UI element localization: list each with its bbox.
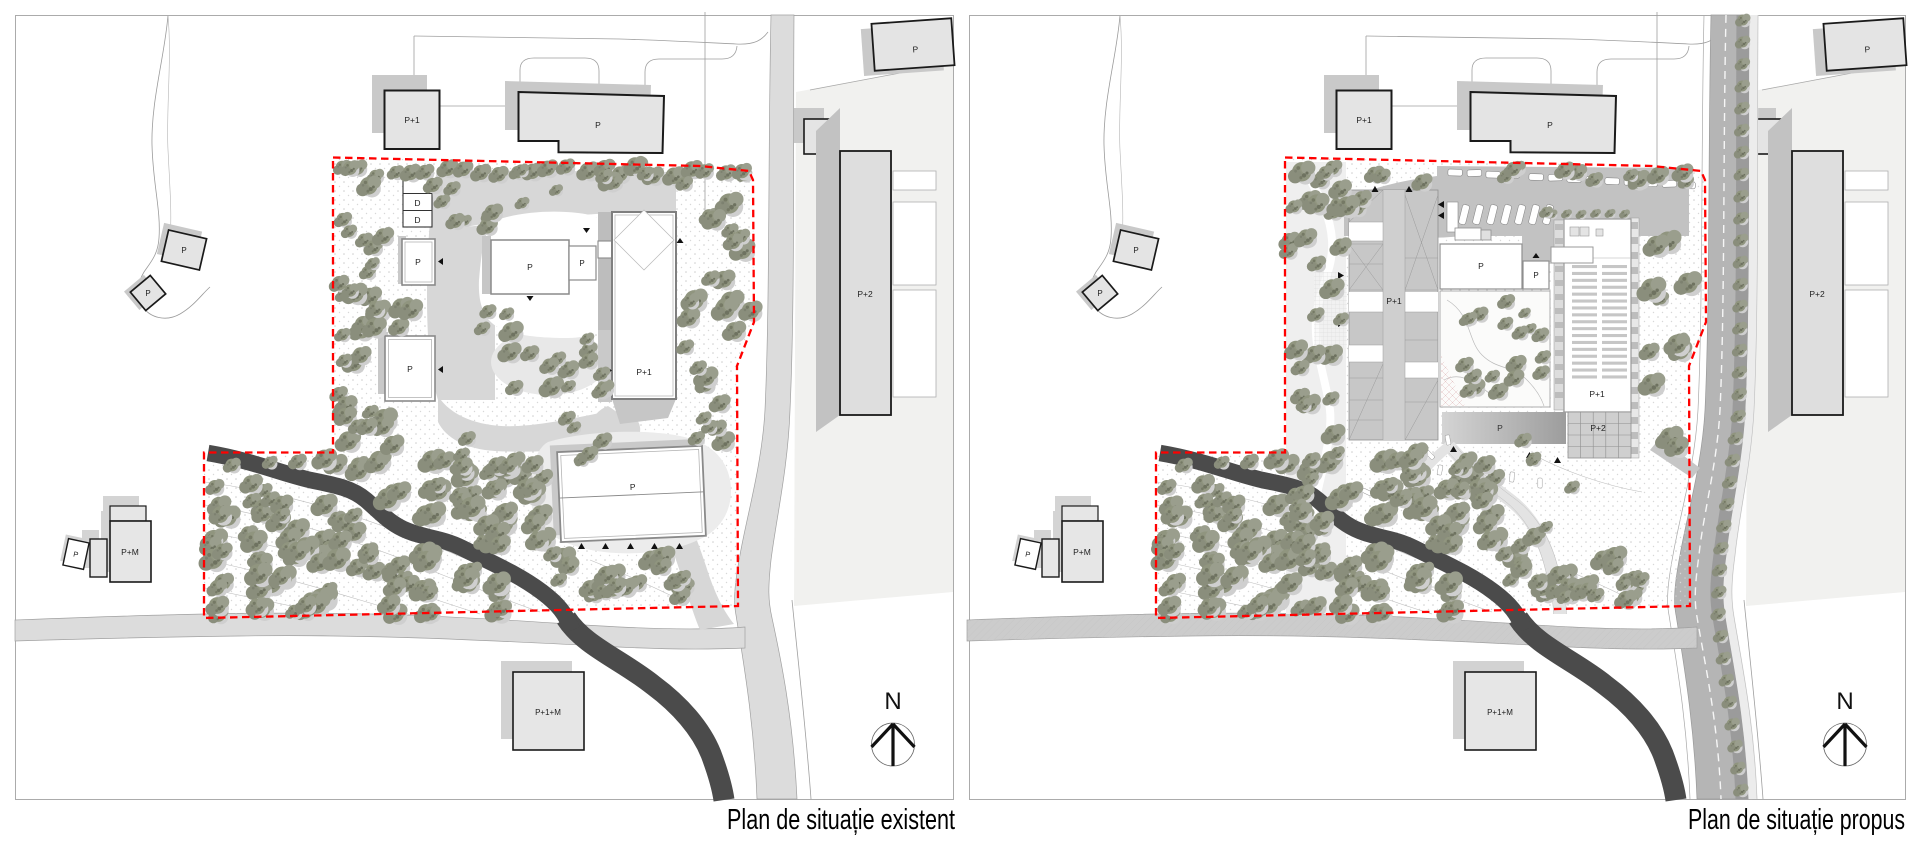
svg-text:Plan de situație existent: Plan de situație existent	[727, 804, 955, 836]
svg-text:Plan de situație propus: Plan de situație propus	[1688, 804, 1905, 836]
svg-text:P+M: P+M	[1073, 547, 1091, 557]
svg-text:P: P	[145, 289, 150, 298]
svg-text:P+1: P+1	[1589, 389, 1605, 399]
svg-text:P: P	[415, 257, 421, 267]
svg-text:D: D	[414, 198, 420, 208]
svg-text:N: N	[884, 688, 901, 715]
svg-text:P+1+M: P+1+M	[535, 708, 561, 717]
svg-text:P+1: P+1	[1356, 115, 1372, 125]
svg-text:P+1: P+1	[404, 115, 420, 125]
svg-text:P: P	[595, 120, 601, 130]
svg-text:P+1: P+1	[636, 367, 652, 377]
svg-text:P: P	[527, 262, 533, 272]
svg-text:P+M: P+M	[121, 547, 139, 557]
svg-text:P: P	[181, 246, 186, 255]
svg-text:D: D	[414, 215, 420, 225]
svg-text:P: P	[579, 259, 584, 268]
svg-text:P: P	[1533, 271, 1538, 280]
svg-text:P: P	[1864, 44, 1871, 54]
svg-text:P: P	[912, 44, 919, 54]
svg-text:P+2: P+2	[1809, 289, 1825, 299]
svg-text:P: P	[407, 364, 413, 374]
svg-text:P: P	[1133, 246, 1138, 255]
svg-text:P+1+M: P+1+M	[1487, 708, 1513, 717]
svg-text:P: P	[1497, 423, 1503, 433]
svg-text:N: N	[1836, 688, 1853, 715]
svg-text:P+2: P+2	[857, 289, 873, 299]
svg-text:P: P	[1478, 261, 1484, 271]
svg-text:P: P	[630, 482, 636, 492]
svg-text:P+2: P+2	[1590, 423, 1606, 433]
svg-text:P: P	[1097, 289, 1102, 298]
svg-text:P+1: P+1	[1386, 296, 1402, 306]
svg-text:P: P	[1547, 120, 1553, 130]
